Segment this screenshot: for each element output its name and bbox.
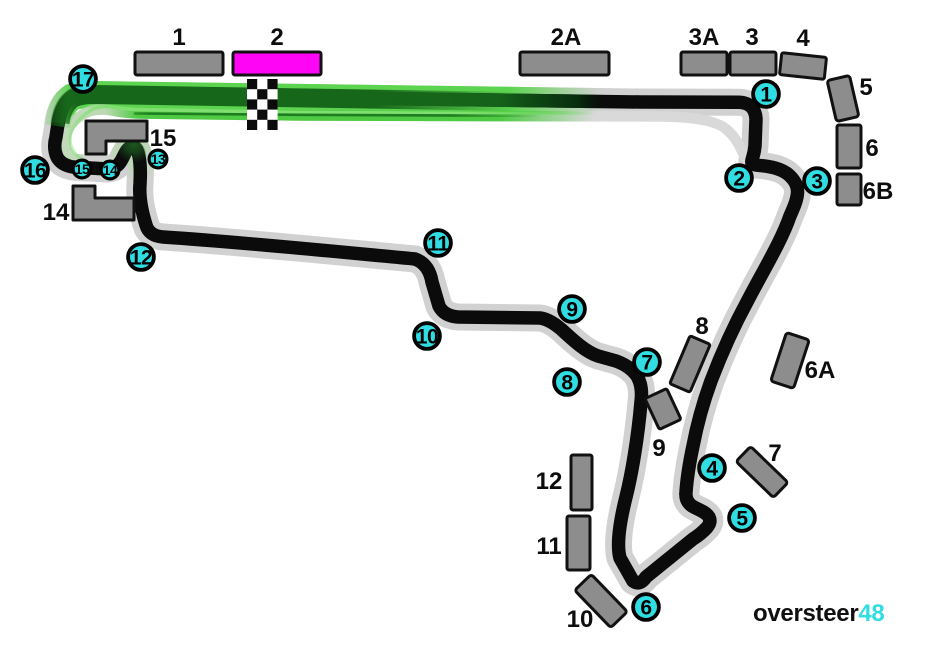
svg-text:6A: 6A (805, 357, 836, 384)
svg-text:16: 16 (24, 160, 46, 183)
svg-text:17: 17 (72, 69, 94, 92)
svg-text:12: 12 (130, 247, 152, 270)
svg-text:2: 2 (733, 168, 744, 191)
svg-text:10: 10 (416, 326, 438, 349)
svg-text:12: 12 (536, 468, 563, 495)
svg-text:4: 4 (706, 458, 718, 481)
svg-text:6: 6 (865, 135, 878, 162)
svg-text:1: 1 (760, 84, 772, 107)
svg-text:15: 15 (150, 125, 177, 152)
svg-text:8: 8 (561, 372, 573, 395)
svg-text:5: 5 (859, 74, 872, 101)
svg-text:7: 7 (641, 352, 652, 375)
svg-text:oversteer48: oversteer48 (753, 600, 884, 627)
svg-text:13: 13 (151, 151, 166, 167)
svg-text:6: 6 (640, 597, 651, 620)
svg-text:5: 5 (736, 508, 748, 531)
svg-text:11: 11 (427, 233, 449, 256)
svg-text:3: 3 (811, 171, 822, 194)
svg-text:3: 3 (745, 24, 758, 51)
svg-text:2A: 2A (551, 24, 582, 51)
svg-text:6B: 6B (863, 178, 894, 205)
svg-text:4: 4 (796, 25, 810, 52)
svg-text:15: 15 (75, 161, 90, 177)
svg-text:9: 9 (566, 299, 577, 322)
svg-text:2: 2 (270, 24, 283, 51)
svg-text:1: 1 (172, 24, 185, 51)
svg-text:3A: 3A (689, 24, 720, 51)
svg-text:10: 10 (567, 606, 594, 633)
svg-text:9: 9 (652, 435, 665, 462)
svg-text:11: 11 (536, 533, 561, 560)
svg-text:14: 14 (103, 162, 118, 178)
svg-text:8: 8 (695, 313, 708, 340)
svg-text:14: 14 (43, 199, 70, 226)
svg-text:7: 7 (768, 440, 781, 467)
